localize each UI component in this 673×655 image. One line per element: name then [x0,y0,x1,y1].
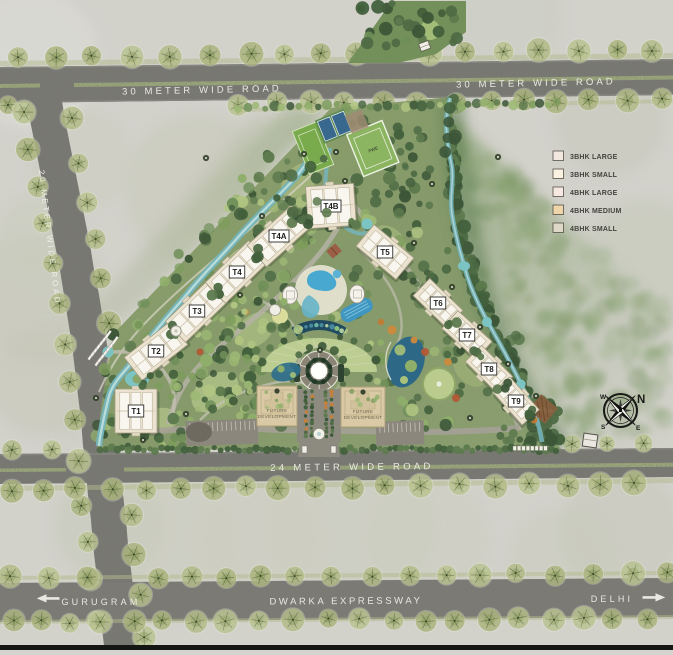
svg-text:T1: T1 [131,407,141,416]
svg-text:24 METER WIDE ROAD: 24 METER WIDE ROAD [270,461,433,474]
svg-text:FUTURE: FUTURE [353,409,374,414]
svg-text:W: W [600,394,607,401]
svg-text:4BHK LARGE: 4BHK LARGE [570,190,618,197]
svg-text:DWARKA EXPRESSWAY: DWARKA EXPRESSWAY [269,595,422,607]
svg-text:4BHK SMALL: 4BHK SMALL [570,226,618,233]
svg-text:DEVELOPMENT: DEVELOPMENT [344,415,383,420]
svg-text:3BHK LARGE: 3BHK LARGE [570,154,618,161]
svg-text:T8: T8 [484,365,494,374]
svg-text:DEVELOPMENT: DEVELOPMENT [258,414,297,419]
svg-text:3BHK SMALL: 3BHK SMALL [570,172,618,179]
svg-text:E: E [636,425,641,432]
svg-text:DELHI: DELHI [591,594,634,604]
svg-text:T4: T4 [232,268,242,277]
svg-text:FUTURE: FUTURE [267,408,288,413]
svg-text:S: S [601,424,606,431]
svg-text:T6: T6 [433,299,443,308]
svg-text:T7: T7 [462,331,472,340]
svg-text:T4A: T4A [271,232,286,241]
svg-text:T2: T2 [151,347,161,356]
svg-text:N: N [637,394,645,406]
svg-text:4BHK MEDIUM: 4BHK MEDIUM [570,208,622,215]
svg-text:GURUGRAM: GURUGRAM [61,597,140,607]
svg-text:T5: T5 [380,248,390,257]
svg-text:T3: T3 [192,307,202,316]
svg-text:T9: T9 [511,397,521,406]
